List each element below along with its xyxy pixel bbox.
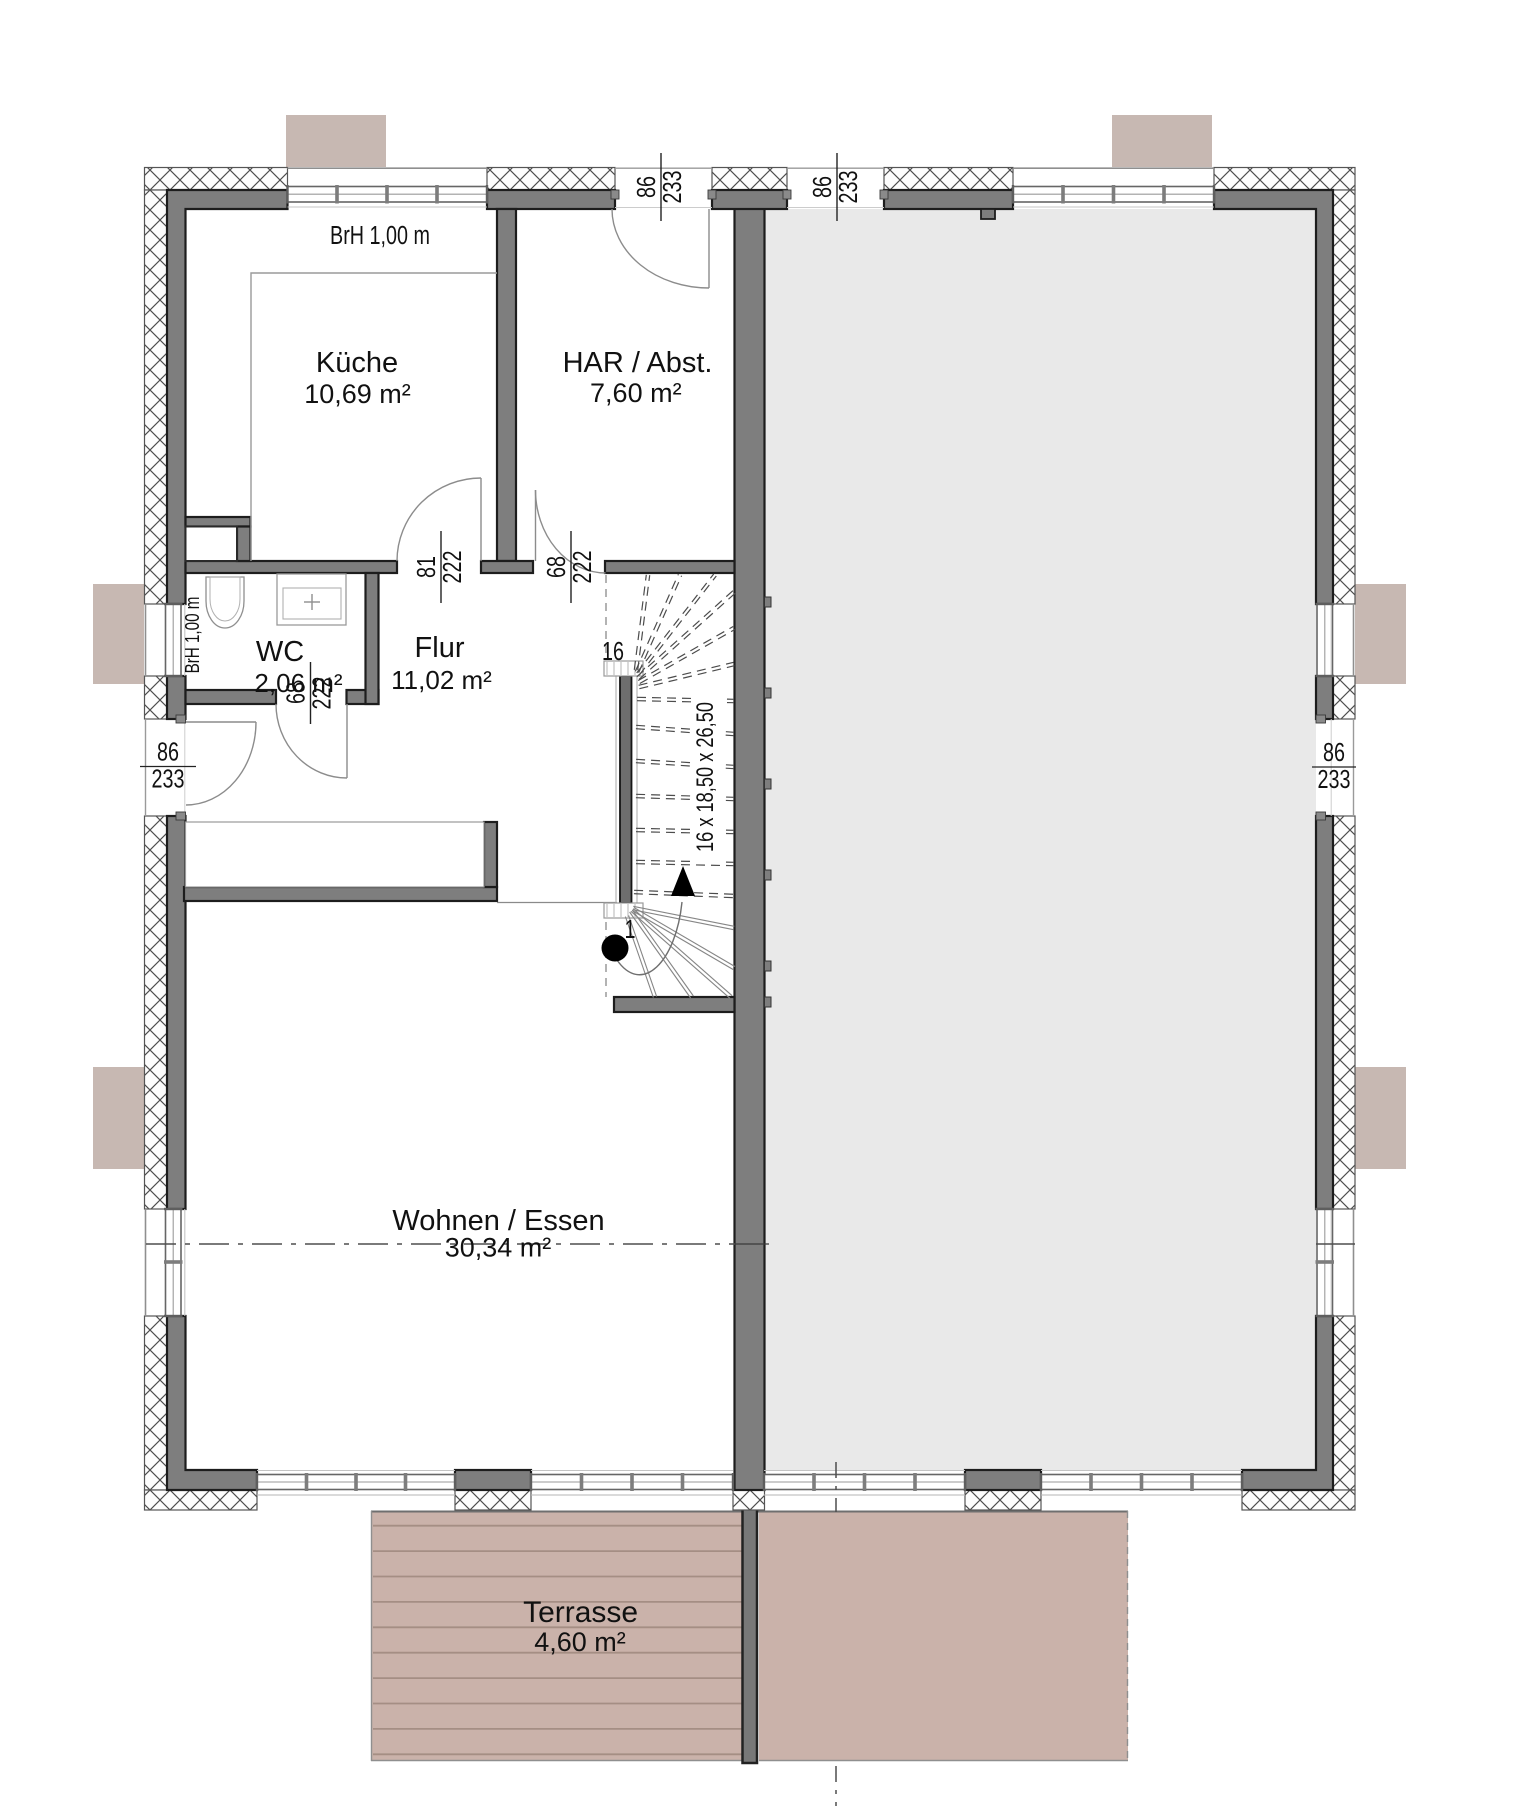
svg-text:86: 86	[1323, 737, 1345, 766]
svg-text:10,69 m²: 10,69 m²	[304, 379, 411, 409]
svg-text:222: 222	[437, 551, 466, 584]
svg-text:4,60 m²: 4,60 m²	[534, 1627, 626, 1657]
svg-text:68: 68	[541, 556, 570, 578]
svg-text:86: 86	[157, 737, 179, 766]
svg-text:16 x 18,50 x 26,50: 16 x 18,50 x 26,50	[692, 702, 719, 852]
svg-text:1: 1	[625, 914, 636, 943]
svg-text:11,02 m²: 11,02 m²	[391, 665, 492, 695]
svg-text:WC: WC	[256, 636, 304, 668]
svg-text:86: 86	[631, 176, 660, 198]
svg-text:81: 81	[411, 556, 440, 578]
svg-text:Terrasse: Terrasse	[523, 1596, 638, 1629]
svg-text:233: 233	[152, 764, 185, 793]
svg-text:Flur: Flur	[415, 632, 465, 664]
svg-text:BrH 1,00 m: BrH 1,00 m	[330, 220, 430, 249]
svg-text:233: 233	[1318, 764, 1351, 793]
svg-text:86: 86	[807, 176, 836, 198]
svg-text:2,06 m²: 2,06 m²	[254, 668, 342, 698]
svg-text:7,60 m²: 7,60 m²	[590, 378, 682, 408]
svg-text:BrH 1,00 m: BrH 1,00 m	[181, 597, 204, 674]
svg-text:HAR / Abst.: HAR / Abst.	[563, 347, 713, 379]
svg-text:30,34 m²: 30,34 m²	[445, 1233, 552, 1263]
svg-text:16: 16	[602, 636, 624, 665]
svg-text:Küche: Küche	[316, 347, 398, 379]
svg-text:233: 233	[657, 171, 686, 204]
svg-text:222: 222	[567, 551, 596, 584]
svg-text:233: 233	[833, 171, 862, 204]
